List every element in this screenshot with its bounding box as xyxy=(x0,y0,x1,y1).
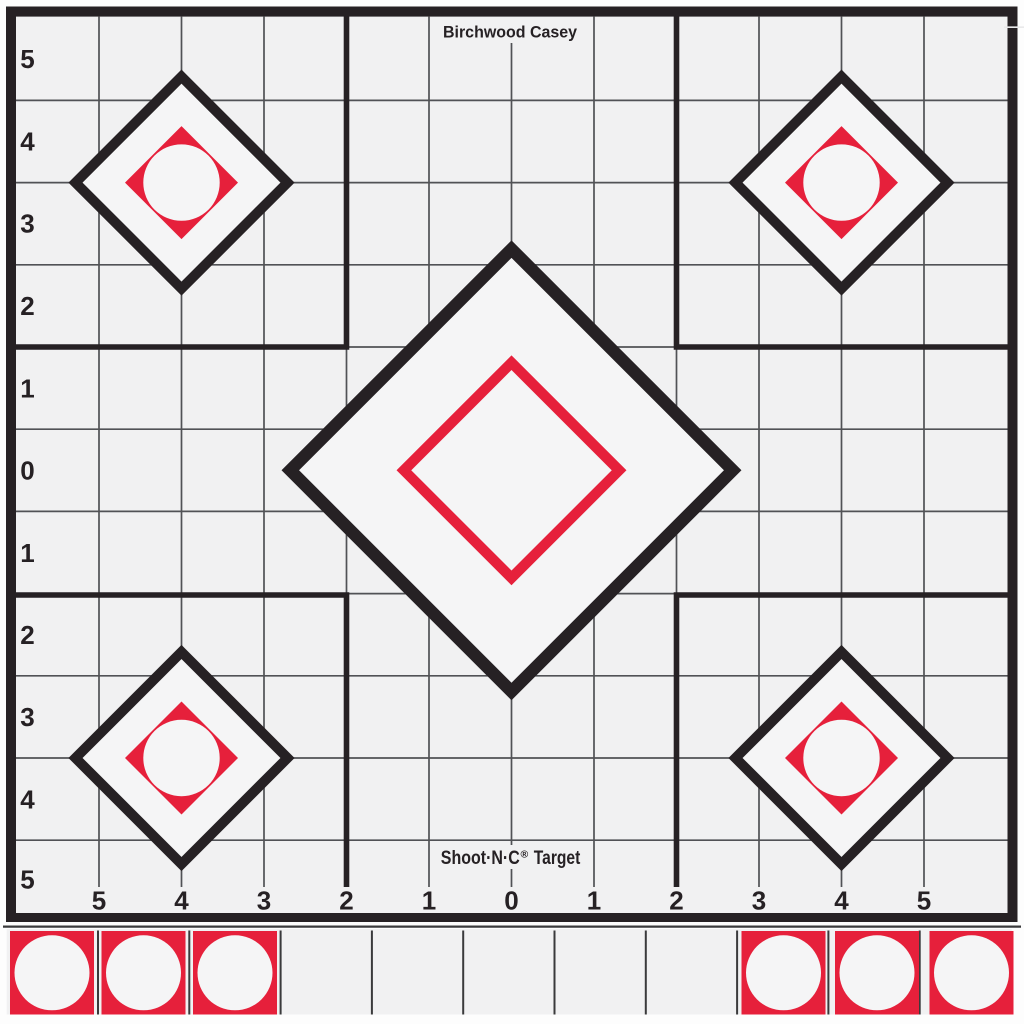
svg-text:5: 5 xyxy=(917,886,931,916)
svg-text:5: 5 xyxy=(20,864,34,894)
svg-text:2: 2 xyxy=(669,886,683,916)
svg-text:3: 3 xyxy=(20,209,34,239)
svg-text:1: 1 xyxy=(422,886,436,916)
svg-text:2: 2 xyxy=(339,886,353,916)
svg-text:0: 0 xyxy=(20,456,34,486)
svg-text:4: 4 xyxy=(20,784,35,814)
svg-text:2: 2 xyxy=(20,620,34,650)
svg-text:Shoot·N·C: Shoot·N·C xyxy=(441,848,520,869)
svg-text:0: 0 xyxy=(504,886,518,916)
svg-text:3: 3 xyxy=(20,702,34,732)
svg-text:1: 1 xyxy=(587,886,601,916)
svg-text:1: 1 xyxy=(20,538,34,568)
svg-text:3: 3 xyxy=(752,886,766,916)
svg-text:®: ® xyxy=(521,849,529,861)
svg-text:2: 2 xyxy=(20,291,34,321)
svg-text:Target: Target xyxy=(534,848,581,869)
svg-text:1: 1 xyxy=(20,373,34,403)
svg-text:5: 5 xyxy=(92,886,106,916)
svg-text:4: 4 xyxy=(834,886,849,916)
svg-text:5: 5 xyxy=(20,44,34,74)
svg-text:3: 3 xyxy=(257,886,271,916)
svg-text:Birchwood Casey: Birchwood Casey xyxy=(443,23,578,42)
svg-text:4: 4 xyxy=(20,126,35,156)
svg-text:4: 4 xyxy=(174,886,189,916)
